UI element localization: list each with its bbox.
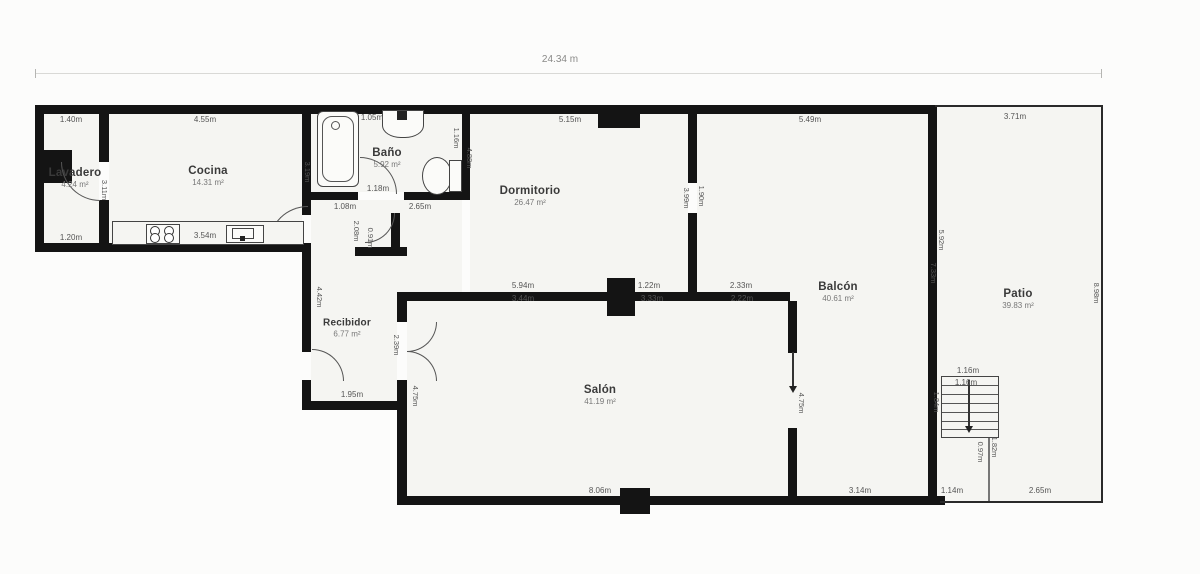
kitchen-sink-icon — [226, 225, 264, 243]
stairs-arrow-head-icon — [965, 426, 973, 433]
vdim-label: 2.08m — [352, 221, 361, 242]
vdim-label: 1.16m — [452, 128, 461, 149]
vdim-label: 2.39m — [392, 335, 401, 356]
dim-label: 3.71m — [1004, 112, 1026, 121]
dim-label: 4.55m — [194, 115, 216, 124]
dim-label: 1.95m — [341, 390, 363, 399]
dim-label: 1.05m — [361, 113, 383, 122]
floor-plan: 24.34 m — [0, 0, 1200, 574]
dimension-tick-left — [35, 69, 36, 78]
wall-lavadero-divider-bottom — [99, 200, 109, 243]
dimension-tick-right — [1101, 69, 1102, 78]
room-label-salon: Salón 41.19 m² — [584, 384, 616, 406]
room-name: Balcón — [818, 281, 858, 293]
dim-label: 5.49m — [799, 115, 821, 124]
vdim-label: 1.90m — [697, 186, 706, 207]
wall-bottom-main — [397, 496, 945, 505]
wall-pillar-salon-bottom — [620, 488, 650, 514]
room-label-patio: Patio 39.83 m² — [1002, 288, 1034, 310]
wall-salon-left-upper — [397, 292, 407, 322]
dim-label: 2.22m — [731, 294, 753, 303]
dim-label: 3.14m — [849, 486, 871, 495]
vdim-label: 3.19m — [303, 162, 312, 183]
room-label-dormitorio: Dormitorio 26.47 m² — [500, 185, 561, 207]
vdim-label: 1.82m — [990, 437, 999, 458]
wall-hall-stub — [355, 247, 407, 256]
wall-top — [35, 105, 935, 114]
room-name: Baño — [372, 147, 402, 159]
wall-salon-balcon-upper — [788, 301, 797, 353]
dim-label: 5.94m — [512, 281, 534, 290]
dim-label: 2.33m — [730, 281, 752, 290]
room-area: 14.31 m² — [188, 178, 228, 187]
dim-label: 5.15m — [559, 115, 581, 124]
stove-icon — [146, 224, 180, 244]
toilet-tank-icon — [449, 160, 462, 192]
room-name: Recibidor — [323, 318, 371, 329]
dim-label: 2.65m — [409, 202, 431, 211]
wall-patio-top — [935, 105, 1103, 107]
room-name: Cocina — [188, 165, 228, 177]
dim-label: 1.08m — [334, 202, 356, 211]
vdim-label: 7.33m — [929, 263, 938, 284]
room-area: 6.77 m² — [323, 330, 371, 339]
room-label-balcon: Balcón 40.61 m² — [818, 281, 858, 303]
vdim-label: 3.99m — [682, 188, 691, 209]
dim-label: 2.65m — [1029, 486, 1051, 495]
wall-balcon-divider-upper — [688, 105, 697, 183]
vdim-label: 4.42m — [315, 287, 324, 308]
room-name: Salón — [584, 384, 616, 396]
dim-label: 1.16m — [955, 378, 977, 387]
balcon-arrow-shaft — [792, 352, 794, 386]
wall-lavadero-divider-top — [99, 114, 109, 162]
dim-label: 1.18m — [367, 184, 389, 193]
room-label-banio: Baño 5.92 m² — [372, 147, 402, 169]
dim-label: 3.54m — [194, 231, 216, 240]
vdim-label: 3.11m — [100, 180, 109, 200]
vdim-label: 4.88m — [465, 148, 474, 169]
dim-label: 1.20m — [60, 233, 82, 242]
room-area: 4.24 m² — [49, 180, 102, 189]
dim-label: 3.44m — [512, 294, 534, 303]
vdim-label: 5.92m — [937, 230, 946, 251]
vdim-label: 8.98m — [1092, 283, 1101, 304]
dim-label: 1.40m — [60, 115, 82, 124]
vdim-label: 4.75m — [411, 386, 420, 407]
balcon-floor — [697, 114, 928, 496]
wall-balcon-divider-lower — [688, 213, 697, 301]
vdim-label: 0.91m — [366, 228, 375, 249]
wall-banio-bottom-left — [310, 192, 358, 200]
bathtub-icon — [317, 111, 359, 187]
room-area: 5.92 m² — [372, 160, 402, 169]
wall-pillar-dormitorio-bottom — [607, 278, 635, 316]
room-area: 41.19 m² — [584, 397, 616, 406]
dim-label: 8.06m — [589, 486, 611, 495]
balcon-arrow-head-icon — [789, 386, 797, 393]
toilet-bowl-icon — [422, 157, 452, 195]
room-area: 26.47 m² — [500, 198, 561, 207]
room-name: Patio — [1002, 288, 1034, 300]
room-area: 40.61 m² — [818, 294, 858, 303]
wall-patio-bottom — [940, 501, 1103, 503]
dim-label: 3.33m — [641, 294, 663, 303]
dim-label: 1.16m — [957, 366, 979, 375]
wall-balcon-right — [928, 105, 937, 505]
room-label-cocina: Cocina 14.31 m² — [188, 165, 228, 187]
wall-salon-left-lower — [397, 380, 407, 505]
room-label-recibidor: Recibidor 6.77 m² — [323, 318, 371, 339]
room-name: Dormitorio — [500, 185, 561, 197]
room-area: 39.83 m² — [1002, 301, 1034, 310]
dim-label: 1.22m — [638, 281, 660, 290]
overall-width-label: 24.34 m — [542, 54, 578, 65]
bath-sink-icon — [382, 110, 424, 138]
dim-label: 1.14m — [941, 486, 963, 495]
vdim-label: 1.84m — [932, 392, 941, 413]
vdim-label: 4.75m — [797, 393, 806, 414]
vdim-label: 0.97m — [976, 442, 985, 463]
hall-floor — [397, 200, 462, 292]
room-name: Lavadero — [49, 167, 102, 179]
overall-dimension-line — [35, 73, 1102, 74]
wall-patio-right — [1101, 105, 1103, 503]
wall-salon-balcon-lower — [788, 428, 797, 505]
room-label-lavadero: Lavadero 4.24 m² — [49, 167, 102, 189]
wall-recibidor-left-upper — [302, 252, 311, 352]
wall-recibidor-bottom — [302, 401, 402, 410]
wall-pillar-dormitorio-top — [598, 105, 640, 128]
